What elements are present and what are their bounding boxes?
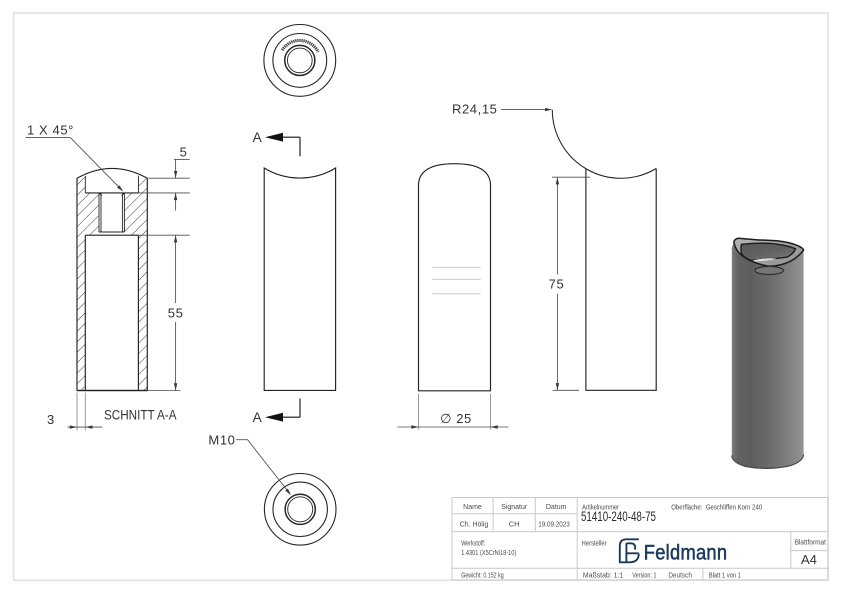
svg-text:Blatt 1 von 1: Blatt 1 von 1 — [709, 570, 741, 579]
svg-text:Datum: Datum — [546, 504, 567, 511]
svg-text:A: A — [253, 129, 263, 145]
svg-text:Oberfläche: Geschliffen Korn: Oberfläche: Geschliffen Korn 240 — [671, 505, 762, 512]
svg-text:A4: A4 — [801, 552, 817, 567]
svg-text:R24,15: R24,15 — [452, 101, 498, 116]
svg-text:Version: 1: Version: 1 — [632, 570, 656, 579]
svg-text:55: 55 — [168, 306, 184, 321]
svg-text:Werkstoff:: Werkstoff: — [461, 538, 485, 547]
svg-text:Deutsch: Deutsch — [668, 570, 692, 579]
svg-text:1.4301 (X5CrNi18-10): 1.4301 (X5CrNi18-10) — [461, 548, 516, 557]
svg-text:Hersteller: Hersteller — [582, 540, 608, 547]
svg-text:A: A — [253, 409, 263, 425]
svg-text:75: 75 — [549, 277, 565, 292]
svg-text:CH: CH — [509, 519, 520, 528]
svg-text:3: 3 — [47, 412, 55, 427]
svg-text:Ch. Hölig: Ch. Hölig — [460, 519, 489, 528]
svg-text:51410-240-48-75: 51410-240-48-75 — [581, 509, 656, 524]
svg-text:Gewicht: 0.152 kg: Gewicht: 0.152 kg — [461, 570, 504, 579]
svg-text:SCHNITT A-A: SCHNITT A-A — [104, 408, 177, 423]
svg-text:1 X 45°: 1 X 45° — [27, 123, 74, 138]
svg-text:Maßstab: 1:1: Maßstab: 1:1 — [583, 570, 623, 579]
svg-text:Blattformat: Blattformat — [795, 539, 826, 546]
svg-text:19.09.2023: 19.09.2023 — [538, 519, 570, 528]
svg-text:5: 5 — [180, 145, 188, 160]
svg-text:Feldmann: Feldmann — [644, 541, 728, 564]
svg-text:Signatur: Signatur — [501, 504, 528, 511]
svg-text:M10: M10 — [208, 433, 235, 448]
svg-text:Name: Name — [463, 504, 482, 511]
svg-text:∅ 25: ∅ 25 — [440, 411, 472, 426]
